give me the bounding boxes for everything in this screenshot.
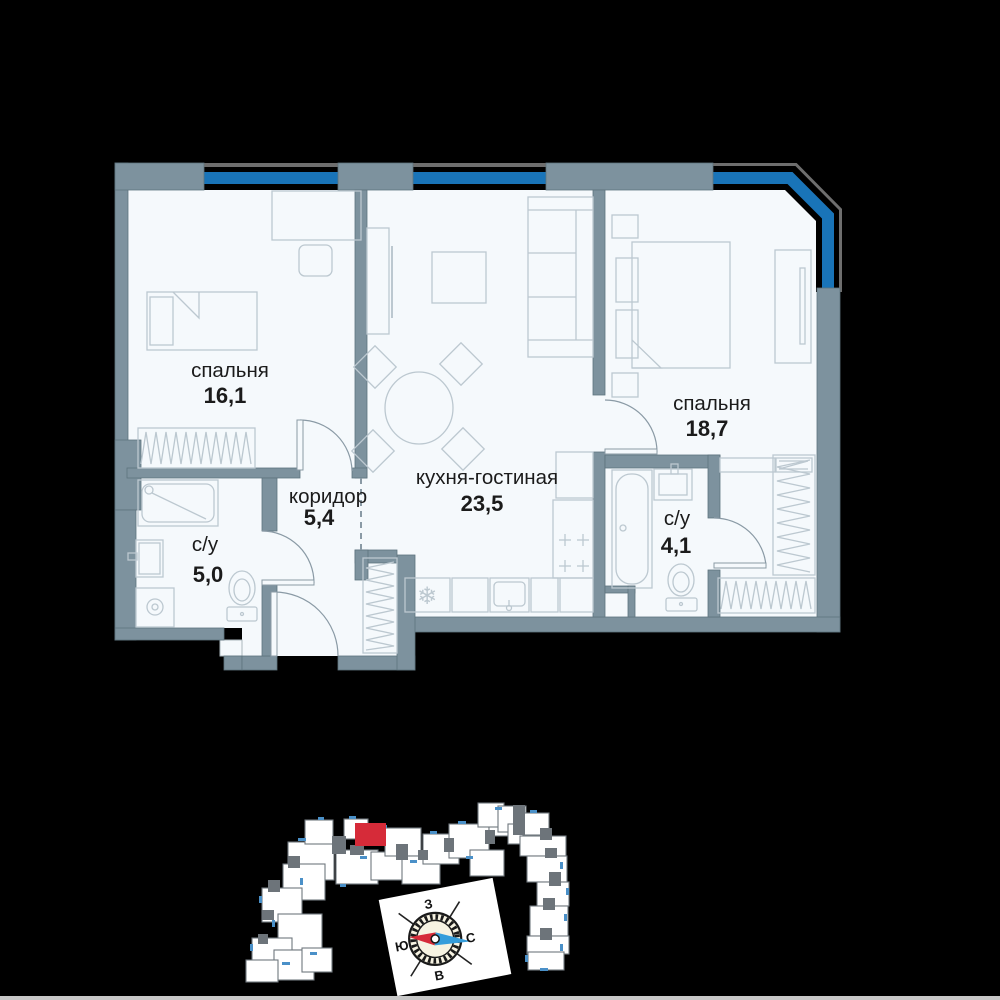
sp-tick <box>340 884 346 887</box>
sp-tick <box>349 816 356 819</box>
sp-block <box>305 820 333 844</box>
sp-conn <box>540 828 552 840</box>
sp-block <box>528 952 564 970</box>
sp-conn <box>396 844 408 860</box>
sp-tick <box>495 807 502 810</box>
room-area-bathroom-1: 5,0 <box>193 562 224 587</box>
room-area-corridor: 5,4 <box>304 505 335 530</box>
sp-tick <box>564 914 567 921</box>
selected-unit-highlight[interactable] <box>355 823 386 846</box>
sp-tick <box>530 810 537 813</box>
sp-tick <box>566 888 569 895</box>
sp-conn <box>543 898 555 910</box>
room-label-kitchen-living: кухня-гостиная <box>416 466 558 489</box>
sp-tick <box>310 952 317 955</box>
sp-tick <box>560 862 563 869</box>
sp-conn <box>262 910 274 920</box>
sp-tick <box>430 831 437 834</box>
sp-tick <box>250 944 253 951</box>
sp-block <box>246 960 278 982</box>
sp-conn <box>418 850 428 860</box>
sp-tick <box>466 856 473 859</box>
sp-conn <box>545 848 557 858</box>
room-area-kitchen-living: 23,5 <box>461 491 504 516</box>
sp-tick <box>458 821 466 824</box>
sp-tick <box>272 920 275 927</box>
sp-tick <box>318 817 324 820</box>
sp-tick <box>560 944 563 951</box>
bottom-strip <box>0 996 1000 1000</box>
room-label-bathroom-2: с/у <box>664 507 691 530</box>
sp-conn <box>268 880 280 892</box>
floorplan-canvas: ❄ <box>0 0 1000 1000</box>
sp-conn <box>332 836 346 854</box>
page: ❄ <box>0 0 1000 1000</box>
sp-tick <box>298 838 306 841</box>
room-area-bathroom-2: 4,1 <box>661 533 692 558</box>
sp-tick <box>540 968 548 971</box>
sp-conn <box>288 856 300 868</box>
window-bedroom-1 <box>204 172 338 184</box>
room-label-bedroom-2: спальня <box>673 392 751 415</box>
sp-tick <box>360 856 367 859</box>
sp-conn <box>513 805 525 835</box>
compass: З Ю С В <box>379 878 512 996</box>
room-label-bathroom-1: с/у <box>192 533 219 556</box>
sp-tick <box>282 962 290 965</box>
sp-block <box>302 948 332 972</box>
room-area-bedroom-2: 18,7 <box>686 416 729 441</box>
room-area-bedroom-1: 16,1 <box>204 383 247 408</box>
sp-tick <box>410 860 417 863</box>
sp-conn <box>549 872 561 886</box>
sp-conn <box>444 838 454 852</box>
sp-conn <box>258 934 268 944</box>
compass-label-south: Ю <box>394 937 410 954</box>
sp-tick <box>525 955 528 962</box>
sp-tick <box>259 896 262 903</box>
fridge-snowflake-icon: ❄ <box>417 582 437 610</box>
sp-conn <box>350 845 364 855</box>
window-kitchen <box>413 172 546 184</box>
sp-block <box>470 850 504 876</box>
sp-conn <box>485 830 495 844</box>
room-label-bedroom-1: спальня <box>191 359 269 382</box>
sp-tick <box>300 878 303 885</box>
sp-conn <box>540 928 552 940</box>
